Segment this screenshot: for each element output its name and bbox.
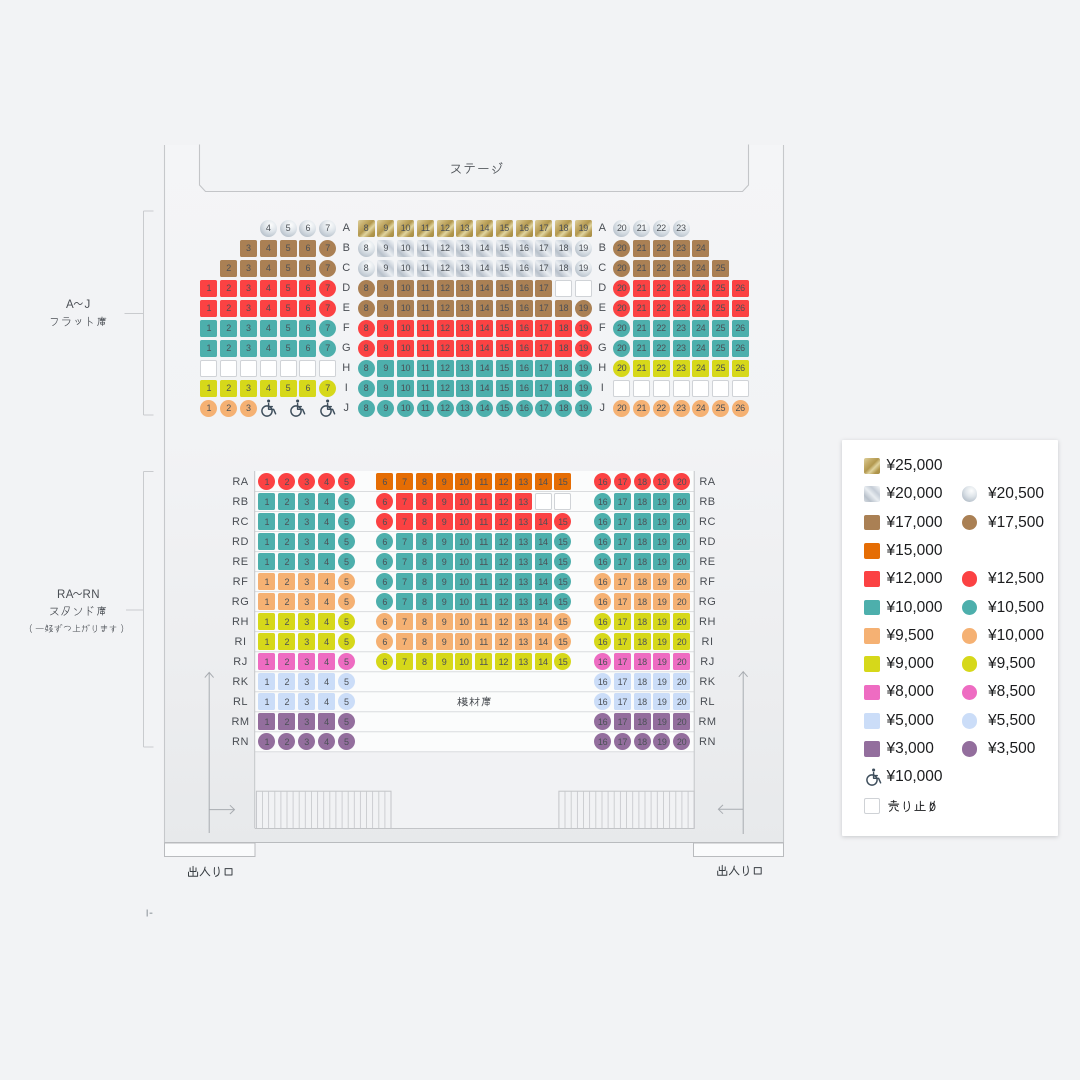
svg-text:A: A xyxy=(66,299,75,311)
svg-text:RN: RN xyxy=(83,589,101,601)
svg-text:RA: RA xyxy=(57,589,74,601)
svg-text:J: J xyxy=(85,299,92,311)
